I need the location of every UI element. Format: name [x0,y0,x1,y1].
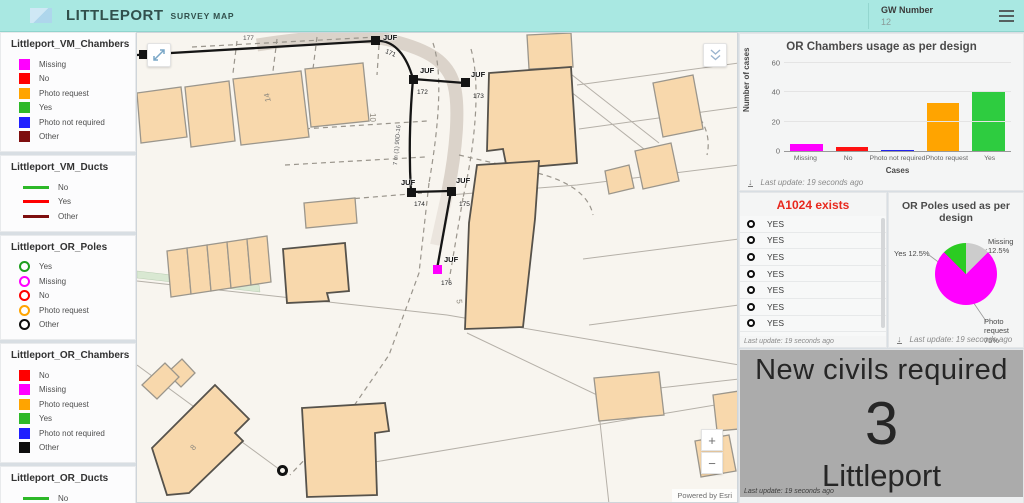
bar-chart-plot: 0204060 [784,64,1011,152]
building-number-5: 5 [455,299,464,304]
legend-item: Other [11,441,125,456]
list-item[interactable]: YES [740,299,886,316]
list-scrollbar[interactable] [881,218,885,328]
zoom-out-button[interactable]: − [701,452,723,474]
legend-item: Photo request [11,86,125,101]
app-header: LITTLEPORT SURVEY MAP GW Number 12 [0,0,1024,32]
bar-slot [784,144,829,151]
chamber-marker-173[interactable] [461,78,470,87]
legend-item-label: Photo not required [39,118,105,127]
other-ring-icon [747,286,755,294]
download-icon[interactable]: ↓ [748,178,753,187]
hamburger-menu-icon[interactable] [999,7,1014,25]
chevron-double-down-icon [710,49,721,61]
expand-icon [153,49,165,61]
map-attribution: Powered by Esri [672,489,737,502]
list-item-value: YES [767,269,784,279]
legend-section-title: Littleport_OR_Ducts [11,473,125,484]
legend-item: Missing [11,383,125,398]
list-item[interactable]: YES [740,249,886,266]
bar-photo-not-required[interactable] [881,150,914,152]
a1024-list-title: A1024 exists [740,193,886,216]
legend-section: Littleport_OR_ChambersNoMissingPhoto req… [1,344,135,462]
x-tick-label: Photo request [925,155,968,162]
legend-item: Photo not required [11,426,125,441]
list-item[interactable]: YES [740,332,886,336]
legend-item: Other [11,318,125,333]
pole-marker-other[interactable] [277,465,288,476]
legend-item: Other [11,130,125,145]
legend-item: Photo request [11,303,125,318]
legend-item: Yes [11,195,125,210]
chamber-marker[interactable] [371,36,380,45]
pie-label-yes: Yes 12.5% [894,249,930,258]
list-item[interactable]: YES [740,316,886,333]
y-tick-label: 0 [776,147,780,156]
legend-item-label: Other [39,443,59,452]
legend-item-label: No [39,74,49,83]
chamber-marker-174[interactable] [407,188,416,197]
bar-chart-ylabel: Number of cases [742,48,751,112]
chamber-marker-175[interactable] [447,187,456,196]
list-item-value: YES [767,318,784,328]
bar-slot [920,103,965,151]
a1024-list-card: A1024 exists YESYESYESYESYESYESYESYESYES… [740,193,886,347]
square-swatch-icon [19,73,30,84]
num-label-175: 175 [459,201,470,208]
square-swatch-icon [19,413,30,424]
legend-item-label: Photo request [39,400,89,409]
list-item-value: YES [767,335,784,336]
legend-section: Littleport_VM_DuctsNoYesOther [1,156,135,231]
square-swatch-icon [19,384,30,395]
bar-slot [875,150,920,152]
list-item[interactable]: YES [740,216,886,233]
bar-slot [829,147,874,151]
square-swatch-icon [19,88,30,99]
bar-missing[interactable] [790,144,823,151]
legend-item: Missing [11,274,125,289]
legend-item: Other [11,209,125,224]
gridline [784,62,1011,63]
legend-item: No [11,289,125,304]
ring-swatch-icon [19,276,30,287]
square-swatch-icon [19,399,30,410]
app-title: LITTLEPORT [66,7,164,24]
gw-number-value: 12 [881,17,933,27]
juf-label: JUF [444,255,458,264]
legend-item-label: Missing [39,277,66,286]
y-tick-label: 40 [772,88,780,97]
chamber-marker-172[interactable] [409,75,418,84]
square-swatch-icon [19,59,30,70]
square-swatch-icon [19,117,30,128]
list-item-value: YES [767,219,784,229]
zoom-in-button[interactable]: + [701,429,723,451]
other-ring-icon [747,253,755,261]
legend-item: Photo not required [11,115,125,130]
juf-label: JUF [383,33,397,42]
y-tick-label: 20 [772,117,780,126]
civils-last-update: Last update: 19 seconds ago [744,488,834,495]
other-ring-icon [747,236,755,244]
list-item[interactable]: YES [740,282,886,299]
legend-item-label: Yes [39,414,52,423]
legend-item-label: Photo request [39,306,89,315]
pie-label-missing: Missing 12.5% [988,237,1024,256]
collapse-panel-button[interactable] [703,43,727,67]
list-last-update: Last update: 19 seconds ago [740,336,886,347]
civils-value: 3 [865,389,898,458]
civils-subtitle: Littleport [822,458,941,494]
legend-item-label: No [58,494,68,503]
bar-chart-last-update: Last update: 19 seconds ago [761,178,864,187]
bar-chart-xlabel: Cases [784,166,1011,175]
survey-map[interactable]: JUF 171 JUF 172 JUF 173 JUF 174 JUF 175 … [136,32,738,503]
legend-item: Yes [11,260,125,275]
legend-item-label: Other [58,212,78,221]
square-swatch-icon [19,370,30,381]
other-ring-icon [747,220,755,228]
square-swatch-icon [19,102,30,113]
building-number-14: 14 [262,92,272,102]
legend-item: No [11,368,125,383]
x-tick-label: No [827,155,870,162]
gridline [784,121,1011,122]
pie-chart-card: OR Poles used as per design Yes 12.5% Mi… [889,193,1023,347]
app-logo [30,8,52,23]
num-label-177: 177 [243,35,254,42]
pie-last-update: Last update: 19 seconds ago [910,335,1013,344]
legend-section: Littleport_OR_DuctsNoYesOther [1,467,135,503]
bar-chart-card: OR Chambers usage as per design Number o… [740,34,1023,190]
x-tick-label: Missing [784,155,827,162]
legend-item: No [11,180,125,195]
legend-section-title: Littleport_OR_Chambers [11,350,125,361]
legend-item-label: Yes [58,197,71,206]
legend-item: Yes [11,101,125,116]
num-label-174: 174 [414,201,425,208]
y-tick-label: 60 [772,59,780,68]
bar-no[interactable] [836,147,869,151]
list-item-value: YES [767,235,784,245]
legend-item: No [11,491,125,503]
num-label-172: 172 [417,89,428,96]
list-item-value: YES [767,302,784,312]
num-label-173: 173 [473,93,484,100]
legend-item-label: Yes [39,103,52,112]
ring-swatch-icon [19,319,30,330]
legend-item: No [11,72,125,87]
list-item-value: YES [767,285,784,295]
juf-label: JUF [456,176,470,185]
legend-item-label: Missing [39,60,66,69]
gw-number-label: GW Number [881,5,933,15]
list-item[interactable]: YES [740,233,886,250]
line-swatch-icon [23,200,49,203]
legend-item: Missing [11,57,125,72]
list-item-value: YES [767,252,784,262]
bar-chart-title: OR Chambers usage as per design [740,34,1023,53]
juf-label: JUF [471,70,485,79]
num-label-176: 176 [441,280,452,287]
civils-title: New civils required [755,354,1008,387]
square-swatch-icon [19,428,30,439]
new-civils-card: New civils required 3 Littleport Last up… [740,350,1023,503]
legend-item-label: No [39,371,49,380]
ring-swatch-icon [19,261,30,272]
expand-map-button[interactable] [147,43,171,67]
other-ring-icon [747,303,755,311]
legend-item-label: Photo request [39,89,89,98]
juf-label: JUF [420,66,434,75]
legend-item-label: Yes [39,262,52,271]
app-subtitle: SURVEY MAP [171,11,235,21]
legend-item-label: No [39,291,49,300]
gridline [784,91,1011,92]
legend-item: Yes [11,412,125,427]
chamber-marker-176-missing[interactable] [433,265,442,274]
line-swatch-icon [23,497,49,500]
card-bottom-strip [740,497,1023,503]
download-icon[interactable]: ↓ [897,335,902,344]
legend-section-title: Littleport_OR_Poles [11,242,125,253]
line-swatch-icon [23,186,49,189]
legend-section: Littleport_OR_PolesYesMissingNoPhoto req… [1,236,135,340]
legend-sidebar: Littleport_VM_ChambersMissingNoPhoto req… [0,32,136,503]
legend-item-label: Photo not required [39,429,105,438]
x-tick-label: Yes [968,155,1011,162]
juf-label: JUF [401,178,415,187]
ring-swatch-icon [19,305,30,316]
legend-item-label: No [58,183,68,192]
legend-section-title: Littleport_VM_Chambers [11,39,125,50]
legend-section: Littleport_VM_ChambersMissingNoPhoto req… [1,33,135,151]
legend-item-label: Missing [39,385,66,394]
other-ring-icon [747,319,755,327]
ring-swatch-icon [19,290,30,301]
x-tick-label: Photo not required [870,155,926,162]
legend-item-label: Other [39,320,59,329]
legend-item: Photo request [11,397,125,412]
legend-item-label: Other [39,132,59,141]
legend-section-title: Littleport_VM_Ducts [11,162,125,173]
other-ring-icon [747,270,755,278]
gw-number-selector[interactable]: GW Number 12 [868,3,973,29]
bar-photo-request[interactable] [927,103,960,151]
square-swatch-icon [19,131,30,142]
square-swatch-icon [19,442,30,453]
list-item[interactable]: YES [740,266,886,283]
building-number-10: 10 [368,113,377,122]
line-swatch-icon [23,215,49,218]
